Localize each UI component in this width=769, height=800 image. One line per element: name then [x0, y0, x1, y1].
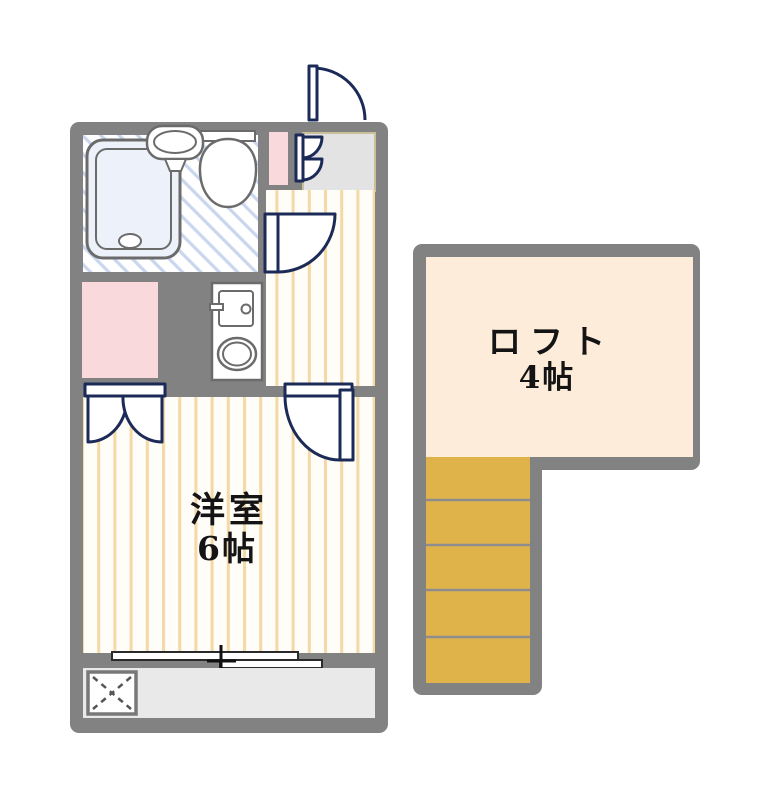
staircase-icon [426, 457, 530, 683]
washing-machine-area-icon [88, 672, 136, 714]
toilet-icon [200, 139, 256, 207]
stairs-floor [426, 457, 530, 683]
bathroom [83, 126, 258, 272]
faucet-icon [210, 304, 223, 310]
loft-room: ロフト 4帖 [426, 257, 693, 457]
bathtub-drain-icon [119, 234, 141, 248]
entrance-area [269, 132, 375, 191]
main-room-size: 6帖 [197, 529, 257, 568]
floor-plan: 洋室 6帖 [0, 0, 769, 800]
entrance-door-icon [309, 66, 365, 120]
balcony [83, 668, 375, 718]
loft-name: ロフト [488, 322, 614, 361]
main-room-name: 洋室 [190, 490, 268, 531]
kitchen-unit-icon [210, 283, 262, 380]
refrigerator-space [82, 282, 158, 378]
loft-size: 4帖 [519, 360, 576, 396]
floor-plan-drawing: 洋室 6帖 [0, 0, 769, 800]
shoe-cabinet [269, 132, 288, 185]
loft-unit: ロフト 4帖 [413, 244, 700, 695]
main-unit: 洋室 6帖 [70, 66, 388, 733]
